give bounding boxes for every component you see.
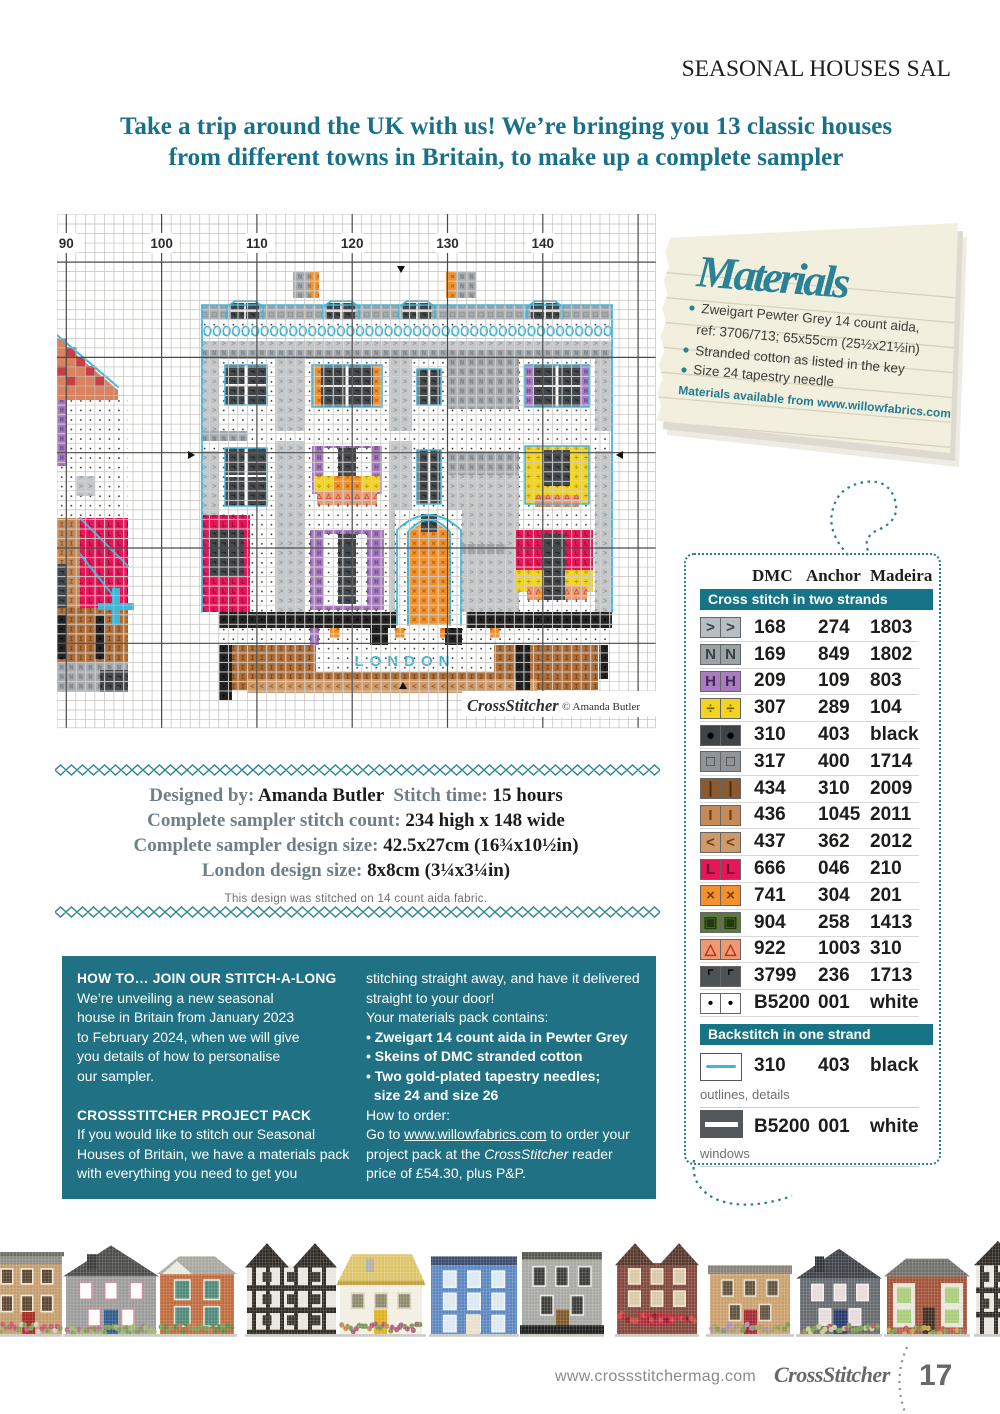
svg-text:LONDON: LONDON [355, 653, 456, 670]
svg-text:110: 110 [246, 236, 268, 251]
svg-text:100: 100 [150, 236, 173, 251]
svg-text:CrossStitcher: CrossStitcher [467, 696, 559, 715]
svg-text:90: 90 [59, 236, 74, 251]
svg-text:© Amanda Butler: © Amanda Butler [562, 701, 640, 713]
svg-text:140: 140 [532, 236, 555, 251]
svg-text:130: 130 [436, 236, 459, 251]
svg-text:120: 120 [341, 236, 364, 251]
